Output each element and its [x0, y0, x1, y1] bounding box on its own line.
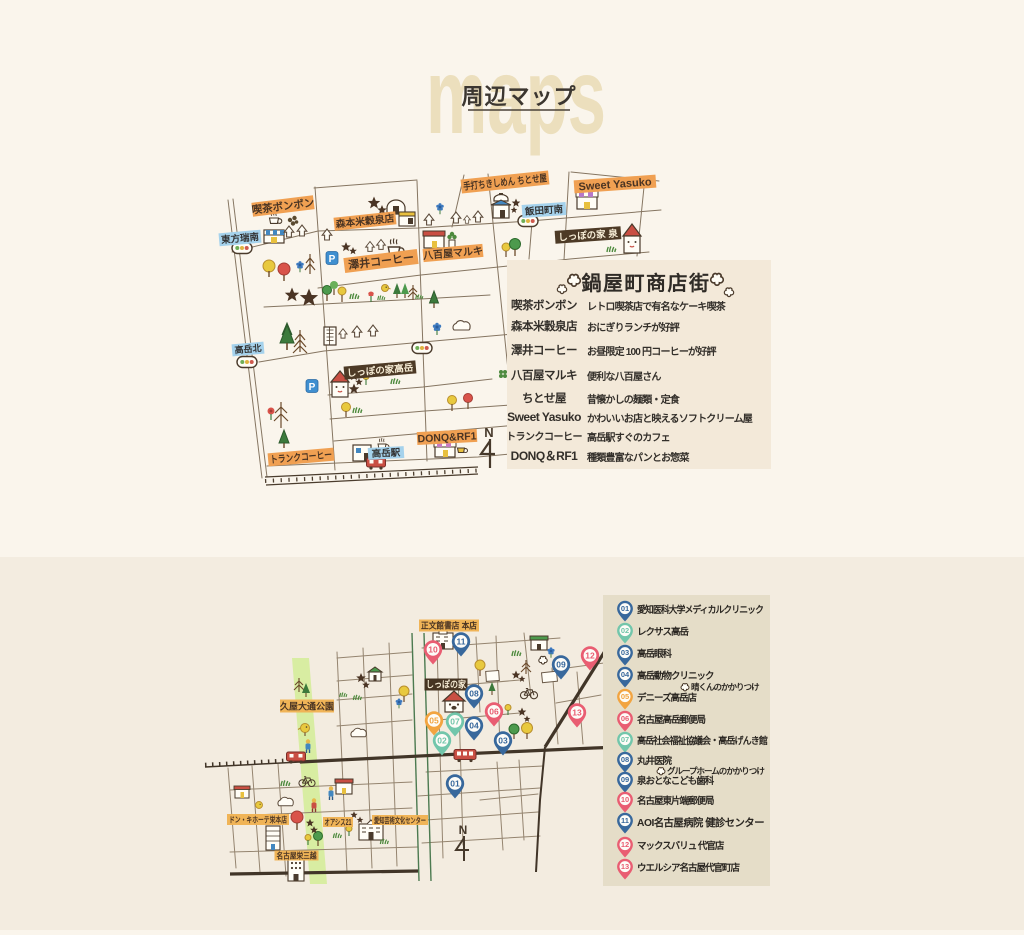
- svg-text:グループホームのかかりつけ: グループホームのかかりつけ: [667, 766, 765, 776]
- svg-text:愛知医科大学メディカルクリニック: 愛知医科大学メディカルクリニック: [637, 604, 763, 616]
- svg-text:高岳眼科: 高岳眼科: [637, 648, 673, 660]
- svg-text:09: 09: [621, 775, 629, 784]
- svg-text:マックスバリュ 代官店: マックスバリュ 代官店: [637, 840, 725, 852]
- svg-text:高岳北: 高岳北: [234, 342, 262, 355]
- svg-text:ウエルシア名古屋代官町店: ウエルシア名古屋代官町店: [637, 862, 741, 874]
- svg-text:06: 06: [621, 714, 629, 723]
- svg-text:八百屋マルキ: 八百屋マルキ: [510, 369, 577, 382]
- svg-text:05: 05: [429, 715, 439, 725]
- svg-text:01: 01: [621, 604, 629, 613]
- svg-text:04: 04: [469, 720, 479, 730]
- svg-text:ドン・キホーテ栄本店: ドン・キホーテ栄本店: [229, 815, 287, 825]
- svg-text:しっぽの家: しっぽの家: [426, 679, 467, 690]
- svg-text:愛知芸術文化センター: 愛知芸術文化センター: [374, 815, 426, 825]
- svg-text:レクサス高岳: レクサス高岳: [637, 626, 690, 638]
- svg-text:08: 08: [621, 755, 629, 764]
- svg-text:久屋大通公園: 久屋大通公園: [280, 701, 334, 712]
- svg-text:名古屋東片端郵便局: 名古屋東片端郵便局: [637, 795, 714, 807]
- svg-text:04: 04: [621, 670, 630, 679]
- svg-text:06: 06: [489, 706, 499, 716]
- svg-text:DONQ＆RF1: DONQ＆RF1: [511, 449, 578, 463]
- svg-text:AOI名古屋病院 健診センター: AOI名古屋病院 健診センター: [637, 816, 764, 829]
- svg-text:ちとせ屋: ちとせ屋: [522, 392, 567, 405]
- svg-text:かわいいお店と映えるソフトクリーム屋: かわいいお店と映えるソフトクリーム屋: [587, 412, 753, 425]
- svg-text:お昼限定 100 円コーヒーが好評: お昼限定 100 円コーヒーが好評: [587, 345, 716, 358]
- svg-text:周辺マップ: 周辺マップ: [461, 84, 576, 109]
- svg-text:07: 07: [450, 716, 460, 726]
- svg-text:03: 03: [621, 648, 629, 657]
- svg-text:11: 11: [457, 636, 466, 646]
- svg-text:晴くんのかかりつけ: 晴くんのかかりつけ: [691, 682, 760, 692]
- svg-text:トランクコーヒー: トランクコーヒー: [506, 431, 582, 443]
- svg-text:03: 03: [498, 735, 508, 745]
- svg-text:泉おとなこども歯科: 泉おとなこども歯科: [636, 775, 715, 787]
- svg-text:名古屋高岳郵便局: 名古屋高岳郵便局: [637, 714, 706, 726]
- svg-text:レトロ喫茶店で有名なケーキ喫茶: レトロ喫茶店で有名なケーキ喫茶: [587, 300, 727, 313]
- svg-text:12: 12: [585, 650, 595, 660]
- svg-text:名古屋栄三越: 名古屋栄三越: [277, 850, 318, 860]
- svg-text:森本米穀泉店: 森本米穀泉店: [511, 319, 578, 333]
- svg-text:高岳駅: 高岳駅: [371, 446, 401, 460]
- svg-text:高岳動物クリニック: 高岳動物クリニック: [637, 670, 714, 682]
- svg-text:12: 12: [621, 840, 629, 849]
- svg-text:02: 02: [621, 626, 629, 635]
- svg-text:02: 02: [437, 735, 447, 745]
- svg-text:昔懐かしの麺類・定食: 昔懐かしの麺類・定食: [587, 393, 681, 406]
- svg-text:09: 09: [556, 659, 566, 669]
- svg-text:種類豊富なパンとお惣菜: 種類豊富なパンとお惣菜: [587, 451, 691, 464]
- svg-text:澤井コーヒー: 澤井コーヒー: [511, 343, 577, 357]
- svg-text:05: 05: [621, 692, 629, 701]
- svg-text:おにぎりランチが好評: おにぎりランチが好評: [587, 321, 680, 334]
- svg-text:N: N: [484, 425, 493, 440]
- svg-text:N: N: [459, 823, 468, 837]
- svg-text:喫茶ボンボン: 喫茶ボンボン: [511, 298, 577, 312]
- svg-text:07: 07: [621, 735, 629, 744]
- svg-text:13: 13: [572, 707, 582, 717]
- svg-text:11: 11: [621, 816, 629, 825]
- svg-text:Sweet Yasuko: Sweet Yasuko: [507, 410, 581, 424]
- svg-text:便利な八百屋さん: 便利な八百屋さん: [587, 370, 661, 383]
- svg-text:デニーズ高岳店: デニーズ高岳店: [637, 692, 698, 704]
- svg-text:オアシス21: オアシス21: [325, 818, 352, 827]
- svg-text:正文館書店 本店: 正文館書店 本店: [421, 620, 477, 631]
- svg-text:08: 08: [469, 688, 479, 698]
- svg-text:01: 01: [450, 778, 460, 788]
- svg-text:13: 13: [621, 862, 629, 871]
- svg-text:10: 10: [621, 795, 629, 804]
- svg-text:鍋屋町商店街: 鍋屋町商店街: [582, 271, 711, 295]
- svg-text:10: 10: [428, 644, 438, 654]
- svg-text:高岳駅すぐのカフェ: 高岳駅すぐのカフェ: [587, 431, 670, 444]
- svg-text:高岳社会福祉協議会・高岳げんき館: 高岳社会福祉協議会・高岳げんき館: [637, 735, 768, 747]
